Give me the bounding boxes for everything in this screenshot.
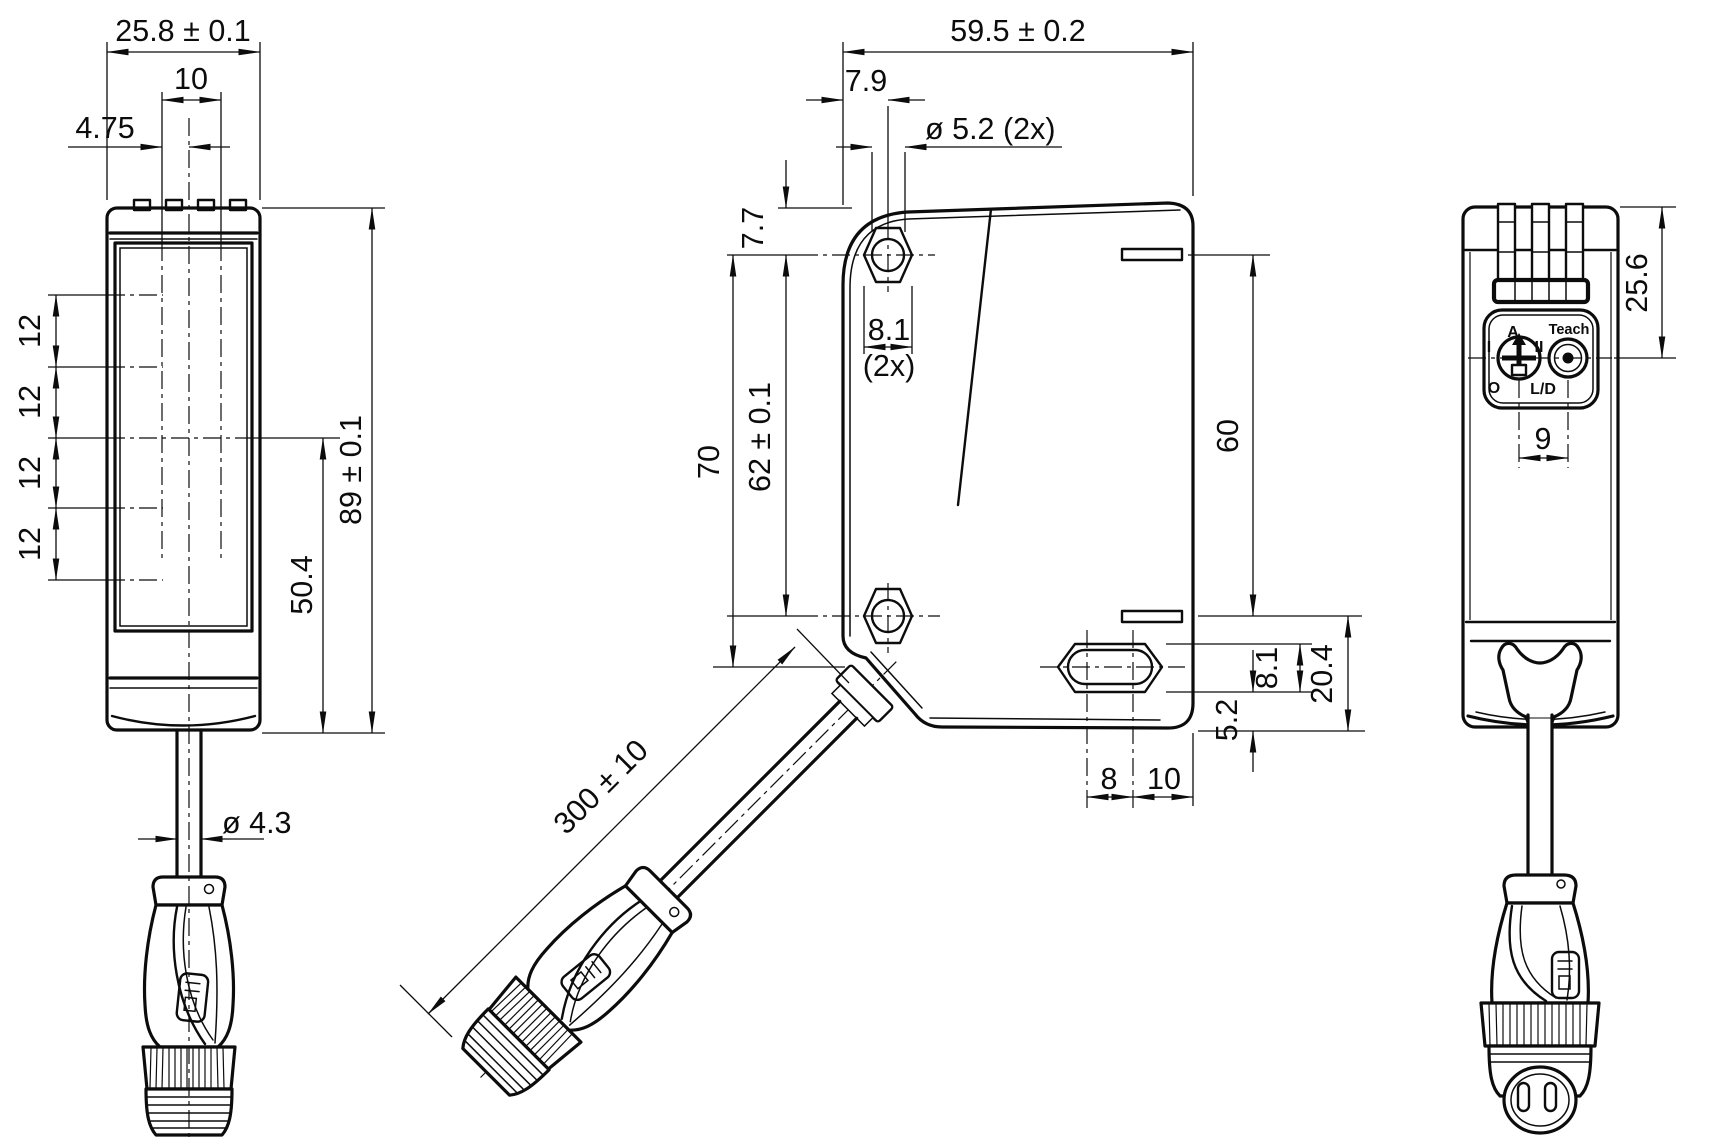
dim-hole-to-slot: 70	[692, 445, 726, 479]
dim-top-to-hole: 7.7	[736, 207, 770, 249]
side-view-cable-assembly	[448, 629, 929, 1110]
pot-label-i: I	[1487, 339, 1491, 356]
dim-beam-pitch-2: 12	[13, 385, 47, 419]
pot-label-ld: L/D	[1530, 381, 1556, 398]
dim-control-pitch: 9	[1535, 422, 1552, 456]
dim-depth: 59.5 ± 0.2	[950, 14, 1085, 48]
m12-connector-front	[1481, 875, 1599, 1133]
dim-height: 89 ± 0.1	[334, 415, 368, 525]
dim-axis-offset: 4.75	[75, 111, 134, 145]
dim-window-width: 10	[174, 62, 208, 96]
dim-hex-width: 8.1	[868, 313, 910, 347]
teach-button[interactable]	[1549, 339, 1587, 377]
teach-label: Teach	[1549, 322, 1590, 338]
dim-slot-width: 8.1	[1250, 647, 1284, 689]
dim-beam-pitch-1: 12	[13, 314, 47, 348]
pot-label-o: O	[1488, 380, 1500, 397]
dim-slot-to-bottom: 5.2	[1210, 699, 1244, 741]
front-view-body	[107, 200, 260, 1135]
dim-back-pitch: 60	[1211, 419, 1245, 453]
side-view: 59.5 ± 0.2 7.9 ø 5.2 (2x) 7.7 62 ± 0.1 7…	[400, 14, 1365, 1110]
sensor-dimension-drawing: 25.8 ± 0.1 10 4.75 12 12 12 12 89 ± 0.1 …	[0, 0, 1710, 1145]
dim-total-width: 25.8 ± 0.1	[115, 14, 250, 48]
dim-cable-dia: ø 4.3	[222, 806, 292, 840]
dim-slot-len: 8	[1101, 762, 1118, 796]
dim-hole-pitch: 62 ± 0.1	[743, 382, 777, 492]
dim-top-to-axis: 25.6	[1620, 253, 1654, 312]
dim-cable-length: 300 ± 10	[547, 733, 655, 841]
back-view-body: A I II O L/D Teach	[1463, 204, 1618, 1133]
dim-axis-height: 50.4	[285, 555, 319, 614]
pot-label-a: A	[1507, 324, 1519, 341]
pot-label-ii: II	[1535, 339, 1544, 356]
technical-drawing-page: 25.8 ± 0.1 10 4.75 12 12 12 12 89 ± 0.1 …	[0, 0, 1710, 1145]
dim-beam-pitch-3: 12	[13, 456, 47, 490]
dim-hex-qty: (2x)	[863, 349, 916, 383]
dim-hole-offset: 7.9	[845, 64, 887, 98]
side-view-body	[843, 203, 1193, 810]
dim-hole-dia: ø 5.2 (2x)	[925, 112, 1056, 146]
front-view: 25.8 ± 0.1 10 4.75 12 12 12 12 89 ± 0.1 …	[13, 14, 385, 1140]
back-view: A I II O L/D Teach	[1463, 204, 1676, 1133]
dim-beam-pitch-4: 12	[13, 527, 47, 561]
dim-slot-zone: 20.4	[1305, 644, 1339, 703]
dim-slot-to-back: 10	[1147, 762, 1181, 796]
mounting-clamp	[1494, 204, 1588, 302]
